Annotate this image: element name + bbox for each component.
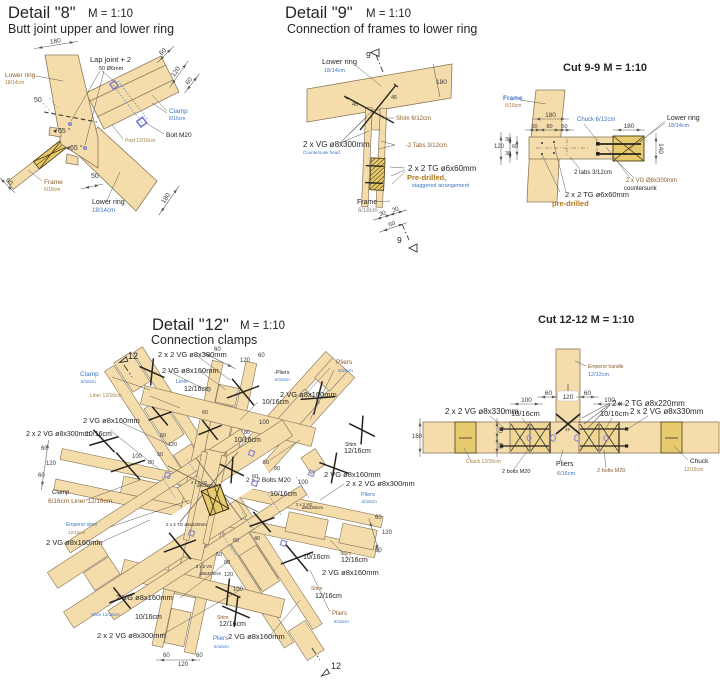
svg-text:6/16cm: 6/16cm bbox=[169, 116, 185, 122]
svg-text:Frame: Frame bbox=[503, 95, 523, 102]
svg-text:6/16cm: 6/16cm bbox=[334, 619, 349, 624]
svg-text:2 x 2 VG: 2 x 2 VG bbox=[196, 564, 212, 569]
svg-text:2 x VG Ø8x300mm: 2 x VG Ø8x300mm bbox=[626, 178, 677, 184]
svg-text:12/16cm: 12/16cm bbox=[341, 557, 368, 564]
svg-text:12/12cm: 12/12cm bbox=[588, 372, 610, 378]
svg-text:Clamp: Clamp bbox=[52, 490, 70, 496]
svg-text:2 VG ø8x160mm: 2 VG ø8x160mm bbox=[324, 470, 381, 479]
svg-text:pre-drilled: pre-drilled bbox=[552, 199, 589, 208]
svg-text:M = 1:10: M = 1:10 bbox=[366, 8, 411, 20]
svg-text:2 x 2 TG ø6x60mm: 2 x 2 TG ø6x60mm bbox=[565, 190, 629, 199]
svg-text:80: 80 bbox=[497, 427, 503, 433]
svg-text:Emperor stem: Emperor stem bbox=[66, 522, 97, 528]
svg-text:Shim 12/16cm: Shim 12/16cm bbox=[91, 612, 120, 617]
svg-text:Chuck 12/16cm: Chuck 12/16cm bbox=[466, 459, 501, 465]
svg-text:50: 50 bbox=[91, 173, 99, 180]
svg-text:12/16cm: 12/16cm bbox=[684, 467, 703, 473]
svg-text:50: 50 bbox=[34, 97, 42, 104]
svg-text:60: 60 bbox=[38, 473, 45, 479]
svg-text:12/16cm: 12/16cm bbox=[315, 593, 342, 600]
svg-text:120: 120 bbox=[240, 358, 251, 364]
svg-text:M = 1:10: M = 1:10 bbox=[88, 8, 133, 20]
svg-text:Liner: Liner bbox=[176, 379, 188, 385]
svg-text:2 VG ø8x160mm: 2 VG ø8x160mm bbox=[83, 416, 140, 425]
svg-text:ø8x330mm: ø8x330mm bbox=[197, 483, 218, 488]
svg-text:Chuck 6/12cm: Chuck 6/12cm bbox=[577, 117, 615, 123]
svg-text:Pliers: Pliers bbox=[332, 611, 347, 617]
svg-text:2 VG ø8x160mm: 2 VG ø8x160mm bbox=[228, 632, 285, 641]
svg-text:2 x 2 VG ø8x300mm: 2 x 2 VG ø8x300mm bbox=[97, 631, 166, 640]
svg-text:50 Ø6mm: 50 Ø6mm bbox=[99, 66, 124, 72]
svg-text:10/16cm: 10/16cm bbox=[85, 431, 112, 438]
svg-text:6/16cm: 6/16cm bbox=[557, 471, 575, 477]
svg-text:Pliers: Pliers bbox=[213, 636, 228, 642]
svg-text:2 x 2 VG ø8x330mm: 2 x 2 VG ø8x330mm bbox=[630, 407, 704, 416]
svg-text:18/14cm: 18/14cm bbox=[5, 80, 24, 86]
svg-text:140: 140 bbox=[657, 143, 664, 154]
svg-text:6/16cm: 6/16cm bbox=[275, 377, 290, 382]
svg-text:80: 80 bbox=[546, 124, 552, 130]
svg-text:6/18cm: 6/18cm bbox=[358, 208, 378, 214]
svg-text:10/16cm: 10/16cm bbox=[234, 437, 261, 444]
svg-text:Bolt M20: Bolt M20 bbox=[166, 132, 192, 139]
svg-text:6/18cm: 6/18cm bbox=[505, 103, 521, 109]
svg-text:Pliers: Pliers bbox=[361, 492, 375, 498]
svg-text:50: 50 bbox=[157, 452, 163, 458]
svg-text:60: 60 bbox=[512, 144, 518, 150]
svg-text:50: 50 bbox=[216, 552, 222, 558]
svg-text:100: 100 bbox=[521, 397, 532, 404]
svg-text:50: 50 bbox=[531, 124, 537, 130]
svg-text:staggered arrangement: staggered arrangement bbox=[412, 183, 470, 189]
svg-text:2 x 2 VG ø8x300mm: 2 x 2 VG ø8x300mm bbox=[346, 479, 415, 488]
svg-text:50: 50 bbox=[561, 124, 567, 130]
svg-text:60: 60 bbox=[252, 474, 258, 480]
svg-text:12/16cm: 12/16cm bbox=[184, 386, 211, 393]
svg-text:30: 30 bbox=[505, 151, 511, 157]
svg-text:Frame: Frame bbox=[44, 179, 63, 186]
svg-text:120: 120 bbox=[563, 394, 574, 401]
svg-text:18/14cm: 18/14cm bbox=[324, 68, 346, 74]
svg-text:65 °: 65 ° bbox=[58, 127, 71, 135]
svg-text:Lower ring: Lower ring bbox=[667, 115, 700, 122]
svg-text:9: 9 bbox=[366, 50, 371, 60]
svg-text:100: 100 bbox=[259, 420, 270, 426]
svg-text:120: 120 bbox=[178, 662, 189, 668]
svg-text:10/16cm: 10/16cm bbox=[135, 614, 162, 621]
svg-text:Cut 9-9 M = 1:10: Cut 9-9 M = 1:10 bbox=[563, 62, 647, 74]
svg-text:45: 45 bbox=[391, 95, 397, 101]
svg-text:6/16cm: 6/16cm bbox=[362, 499, 377, 504]
svg-text:120: 120 bbox=[382, 530, 393, 536]
svg-text:Pre-drilled,: Pre-drilled, bbox=[407, 173, 446, 182]
svg-text:10/16cm: 10/16cm bbox=[270, 491, 297, 498]
svg-text:Post 12/16cm: Post 12/16cm bbox=[125, 138, 156, 144]
svg-text:60: 60 bbox=[202, 410, 208, 416]
svg-text:60: 60 bbox=[214, 347, 221, 353]
svg-text:50: 50 bbox=[263, 460, 269, 466]
svg-text:60: 60 bbox=[545, 390, 553, 397]
svg-text:12/12cm: 12/12cm bbox=[68, 530, 86, 535]
svg-text:Clamp: Clamp bbox=[80, 371, 99, 378]
svg-text:12/16cm: 12/16cm bbox=[344, 448, 371, 455]
svg-text:120: 120 bbox=[46, 461, 57, 467]
svg-text:Connection of frames to lower: Connection of frames to lower ring bbox=[287, 22, 477, 36]
svg-text:2 x 2 VG ø8x300mm: 2 x 2 VG ø8x300mm bbox=[26, 431, 90, 438]
svg-text:2 VG ø8x160mm: 2 VG ø8x160mm bbox=[46, 538, 103, 547]
svg-text:120: 120 bbox=[494, 144, 505, 150]
svg-text:80: 80 bbox=[497, 442, 503, 448]
svg-text:6/18cm: 6/18cm bbox=[44, 187, 60, 193]
svg-text:12: 12 bbox=[331, 661, 341, 671]
svg-text:60: 60 bbox=[584, 390, 592, 397]
svg-text:Detail "12": Detail "12" bbox=[152, 316, 229, 334]
svg-text:-2 Tabs 3/12cm: -2 Tabs 3/12cm bbox=[406, 143, 447, 149]
svg-text:Frame: Frame bbox=[357, 199, 377, 206]
svg-text:Emperor handle: Emperor handle bbox=[588, 364, 624, 370]
svg-text:2 VG ø8x160mm: 2 VG ø8x160mm bbox=[322, 568, 379, 577]
svg-text:2 x VG ø8x300mm: 2 x VG ø8x300mm bbox=[303, 140, 370, 149]
svg-text:180: 180 bbox=[545, 112, 556, 119]
svg-text:60: 60 bbox=[196, 653, 203, 659]
svg-text:Lower ring: Lower ring bbox=[322, 57, 357, 66]
svg-text:60: 60 bbox=[233, 538, 239, 544]
svg-text:2 bolts M20: 2 bolts M20 bbox=[502, 469, 530, 475]
svg-text:12: 12 bbox=[128, 351, 138, 361]
svg-text:10/16cm: 10/16cm bbox=[262, 399, 289, 406]
svg-text:ø8x330mm: ø8x330mm bbox=[302, 505, 323, 510]
svg-text:80: 80 bbox=[274, 466, 280, 472]
svg-text:100: 100 bbox=[233, 587, 244, 593]
svg-text:18/14cm: 18/14cm bbox=[668, 123, 690, 129]
svg-text:Pliers: Pliers bbox=[336, 359, 353, 366]
svg-text:Connection clamps: Connection clamps bbox=[151, 333, 257, 347]
svg-text:60: 60 bbox=[375, 515, 382, 521]
svg-text:Shim: Shim bbox=[311, 586, 322, 592]
svg-text:120: 120 bbox=[224, 572, 233, 578]
svg-text:40: 40 bbox=[254, 536, 260, 542]
svg-text:Cut 12-12 M = 1:10: Cut 12-12 M = 1:10 bbox=[538, 314, 634, 326]
svg-text:45: 45 bbox=[352, 102, 358, 108]
svg-text:Detail "9": Detail "9" bbox=[285, 4, 353, 22]
svg-text:2 x 2 VG ø8x330mm: 2 x 2 VG ø8x330mm bbox=[445, 407, 519, 416]
svg-text:65 °: 65 ° bbox=[70, 144, 83, 152]
svg-text:6/16cm Liner 12/16cm: 6/16cm Liner 12/16cm bbox=[48, 498, 112, 505]
svg-text:Liner 12/16cm: Liner 12/16cm bbox=[90, 393, 122, 399]
svg-text:2 VG ø8x160mm: 2 VG ø8x160mm bbox=[162, 366, 219, 375]
svg-text:9: 9 bbox=[397, 235, 402, 245]
svg-text:Lap joint + 2: Lap joint + 2 bbox=[90, 55, 131, 64]
svg-text:180: 180 bbox=[624, 123, 635, 130]
svg-text:10/16cm: 10/16cm bbox=[600, 409, 629, 418]
svg-text:Detail "8": Detail "8" bbox=[8, 4, 76, 22]
svg-text:120: 120 bbox=[168, 442, 177, 448]
svg-text:Lower ring: Lower ring bbox=[5, 72, 36, 79]
svg-text:2 VG ø8x160mm: 2 VG ø8x160mm bbox=[116, 593, 173, 602]
svg-text:Shim 6/12cm: Shim 6/12cm bbox=[396, 116, 431, 122]
svg-text:Countersunk head: Countersunk head bbox=[303, 150, 340, 155]
svg-text:2 bolts M20: 2 bolts M20 bbox=[597, 468, 625, 474]
svg-text:6/16cm: 6/16cm bbox=[338, 368, 353, 373]
svg-text:M = 1:10: M = 1:10 bbox=[240, 320, 285, 332]
svg-text:10/16cm: 10/16cm bbox=[303, 554, 330, 561]
svg-text:6/16cm: 6/16cm bbox=[214, 644, 229, 649]
svg-text:Lower ring: Lower ring bbox=[92, 199, 125, 206]
svg-text:2 tabs 3/12cm: 2 tabs 3/12cm bbox=[574, 170, 612, 176]
svg-text:ø8x330mm: ø8x330mm bbox=[200, 571, 221, 576]
svg-text:18/14cm: 18/14cm bbox=[92, 208, 115, 214]
svg-text:10/16cm: 10/16cm bbox=[511, 409, 540, 418]
svg-text:80: 80 bbox=[244, 430, 250, 436]
svg-text:60: 60 bbox=[160, 433, 166, 439]
svg-text:6/16cm: 6/16cm bbox=[81, 379, 96, 384]
svg-text:Butt joint upper and lower rin: Butt joint upper and lower ring bbox=[8, 22, 174, 36]
svg-text:Pliers: Pliers bbox=[556, 461, 574, 468]
svg-text:60: 60 bbox=[163, 653, 170, 659]
svg-text:30: 30 bbox=[505, 137, 511, 143]
svg-text:160: 160 bbox=[412, 434, 423, 440]
svg-text:45: 45 bbox=[565, 427, 571, 432]
svg-text:2 x 2 TG ø6x60mm: 2 x 2 TG ø6x60mm bbox=[408, 164, 477, 173]
svg-text:Chuck: Chuck bbox=[690, 458, 709, 465]
svg-text:-Pliers: -Pliers bbox=[274, 370, 290, 376]
svg-text:Clamp: Clamp bbox=[169, 108, 188, 115]
svg-text:2 x 2 TG ø8x220mm: 2 x 2 TG ø8x220mm bbox=[166, 522, 207, 527]
svg-text:countersunk: countersunk bbox=[624, 186, 658, 192]
svg-text:12/16cm: 12/16cm bbox=[219, 621, 246, 628]
svg-text:60: 60 bbox=[258, 353, 265, 359]
